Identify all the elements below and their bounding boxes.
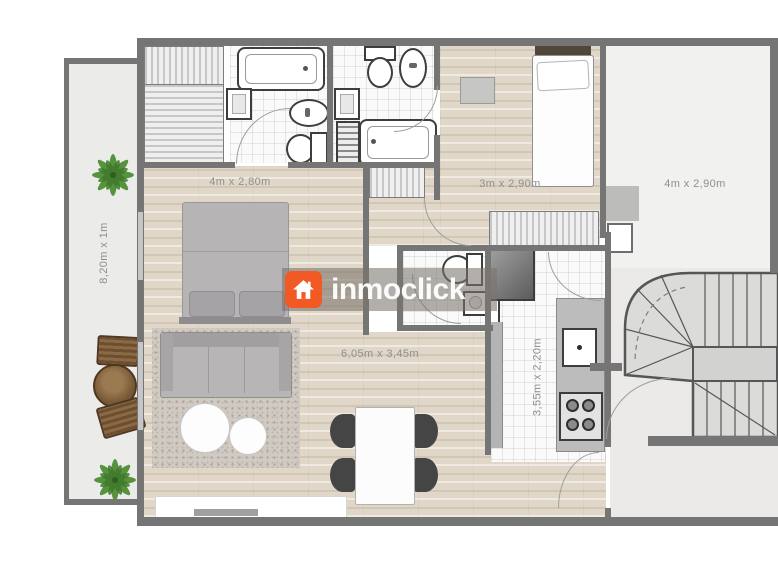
- burner: [582, 418, 595, 431]
- dining-chair: [330, 414, 356, 448]
- wall: [327, 40, 333, 166]
- wall: [143, 162, 235, 168]
- burner: [566, 418, 579, 431]
- bench: [460, 77, 495, 104]
- room-label: 3m x 2,90m: [455, 178, 565, 190]
- window: [138, 342, 143, 430]
- inmoclick-logo-icon: [285, 271, 322, 308]
- toilet-tank: [310, 132, 328, 166]
- bidet-slot: [305, 108, 310, 117]
- sink: [226, 88, 252, 120]
- wall: [590, 363, 622, 371]
- bidet: [289, 99, 329, 127]
- wall: [64, 58, 143, 64]
- burner: [566, 399, 579, 412]
- toilet-bowl: [367, 57, 393, 88]
- pillow: [189, 291, 235, 317]
- stove: [559, 392, 603, 441]
- sofa-seam: [208, 347, 209, 393]
- room-label: 4m x 2,90m: [640, 178, 750, 190]
- room-label: 4m x 2,80m: [180, 176, 300, 188]
- burner: [582, 399, 595, 412]
- bidet-slot: [409, 63, 417, 68]
- sofa: [160, 332, 292, 398]
- kitchen-sink: [562, 328, 597, 367]
- bathtub-drain: [303, 66, 308, 71]
- sink-basin: [232, 94, 246, 114]
- bedroom-second-wardrobe: [489, 211, 599, 248]
- house-icon: [291, 277, 316, 302]
- room-label: 6,05m x 3,45m: [320, 348, 440, 360]
- window: [138, 212, 143, 280]
- palm-tree-icon: [90, 152, 136, 198]
- wall: [137, 38, 778, 46]
- closet-shelves-bottom: [144, 84, 224, 166]
- wall: [600, 38, 606, 238]
- wall: [770, 38, 778, 273]
- sofa-seam: [244, 347, 245, 393]
- bathtub: [237, 47, 325, 91]
- corridor-wardrobe: [369, 167, 425, 198]
- watermark-brand: inmoclick: [331, 271, 465, 308]
- coffee-table: [180, 403, 230, 453]
- dining-chair: [412, 414, 438, 448]
- wall: [397, 245, 605, 251]
- sofa-arm: [161, 333, 173, 391]
- pillow: [536, 60, 589, 92]
- dining-table: [355, 407, 415, 505]
- room-label: 3,55m x 2,20m: [532, 330, 544, 425]
- sofa-back: [161, 333, 291, 347]
- wall: [137, 38, 144, 525]
- bed-seam: [183, 251, 288, 252]
- floor-plan-canvas: 4m x 2,80m 3m x 2,90m 4m x 2,90m 3,55m x…: [0, 0, 778, 576]
- wall: [397, 325, 493, 331]
- dining-chair: [412, 458, 438, 492]
- bathtub-drain: [371, 139, 376, 144]
- sideboard-detail: [194, 509, 258, 516]
- wall: [605, 508, 611, 520]
- sink-basin: [340, 94, 354, 114]
- pillow: [239, 291, 285, 317]
- wall: [64, 58, 69, 505]
- dining-chair: [330, 458, 356, 492]
- palm-tree-icon: [92, 457, 138, 503]
- sink: [334, 88, 360, 120]
- sofa-arm: [279, 333, 291, 391]
- watermark-bar: inmoclick: [282, 268, 497, 311]
- duct-block: [604, 186, 639, 221]
- double-bed: [182, 202, 289, 320]
- closet-shelves-top: [144, 46, 224, 86]
- room-label: 8,20m x 1m: [98, 208, 110, 298]
- towel-radiator: [336, 121, 360, 166]
- balcony-chair: [96, 335, 140, 367]
- sideboard: [155, 496, 347, 518]
- wall: [137, 517, 778, 526]
- bidet: [399, 48, 427, 88]
- wall: [64, 499, 143, 505]
- bed-headboard: [179, 317, 291, 324]
- coffee-table: [229, 417, 267, 455]
- wall: [434, 40, 440, 90]
- kitchen-sink-drain: [577, 345, 582, 350]
